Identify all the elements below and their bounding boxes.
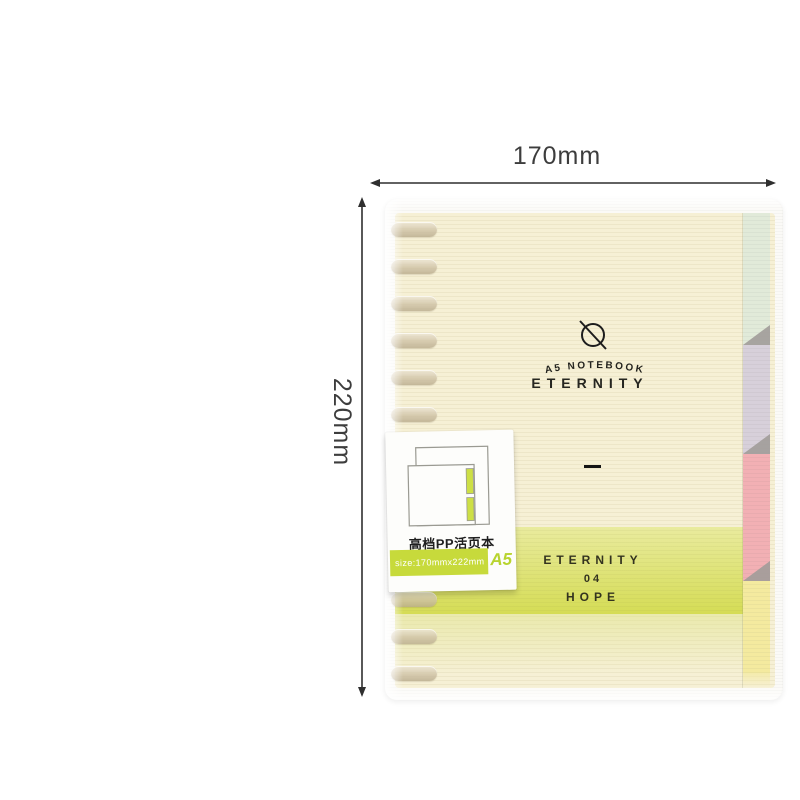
cover-frost-bottom — [385, 686, 783, 700]
product-photo: 170mm 220mm A5 NOTEBOOK — [0, 0, 800, 800]
index-tab-mint — [743, 213, 770, 345]
height-dimension-label: 220mm — [328, 322, 356, 522]
index-tabs — [742, 213, 770, 688]
label-size-strip: size:170mmx222mm — [390, 548, 489, 576]
index-tab-pink — [743, 454, 770, 581]
height-dimension-arrow — [356, 197, 368, 697]
cover-subtitle: A5 NOTEBOOK — [544, 360, 646, 376]
cover-title: ETERNITY — [395, 375, 775, 391]
cover-frost-top — [385, 199, 783, 211]
band-word: HOPE — [395, 590, 755, 604]
svg-text:A5 NOTEBOOK: A5 NOTEBOOK — [544, 360, 646, 376]
width-dimension-label: 170mm — [457, 142, 657, 171]
notebook-diagram-icon — [400, 442, 502, 530]
width-dimension-arrow — [370, 177, 776, 189]
band-fade — [395, 614, 755, 686]
label-size-badge: A5 — [490, 550, 512, 570]
notebook-cover: A5 NOTEBOOK ETERNITY ETERNITY 04 HOPE — [385, 199, 783, 700]
label-tag: 高档PP活页本 size:170mmx222mm A5 — [385, 430, 516, 593]
index-tab-yellow — [743, 581, 770, 673]
dash-mark — [584, 465, 601, 468]
